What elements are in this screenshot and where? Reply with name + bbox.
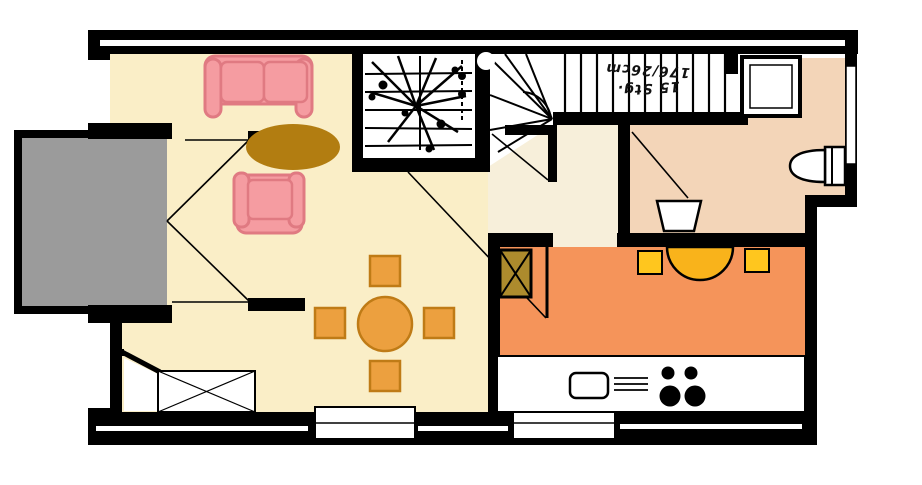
wall-stair-door-stub: [548, 133, 557, 182]
armchair-cushion: [248, 180, 292, 219]
wall-entrance-inner: [110, 323, 122, 412]
stove-burner-large-left: [660, 386, 681, 407]
wall-face-top: [100, 40, 845, 46]
wall-sketch-stairs-left: [352, 52, 363, 172]
entrance-cabinet: [158, 371, 255, 412]
wall-bathroom-kitchen: [617, 233, 817, 247]
wall-terrace-top: [88, 123, 172, 139]
dining-table: [358, 297, 412, 351]
bathroom-sink: [657, 201, 701, 234]
wall-face-bottom-left: [96, 426, 308, 431]
armchair: [234, 173, 304, 233]
sofa-cushion-left: [221, 62, 264, 102]
wall-bathroom-left: [618, 120, 630, 247]
toilet-tank: [825, 147, 845, 185]
wall-sketch-stairs-bottom: [352, 158, 490, 172]
dining-chair-bottom: [370, 361, 400, 391]
kitchen-sink: [570, 373, 608, 398]
wall-face-bottom-right: [620, 424, 802, 429]
window-left-upper: [88, 60, 110, 123]
wall-face-bottom-mid: [418, 426, 508, 431]
window-bottom-left: [315, 407, 415, 439]
kitchen-chair-left: [638, 251, 662, 274]
stove-burner-small-right: [685, 367, 698, 380]
sofa-arm-left: [205, 59, 221, 117]
kitchen-chair-right: [745, 249, 769, 272]
terrace-border-bottom: [14, 306, 90, 314]
wall-kitchen-right: [805, 195, 817, 445]
stair-door-pivot: [477, 52, 495, 70]
kitchen-counter: [497, 356, 805, 412]
coffee-table: [246, 124, 340, 170]
refrigerator-cabinet: [500, 250, 531, 297]
window-left-lower: [88, 323, 110, 408]
sofa-cushion-right: [264, 62, 307, 102]
stove-burner-large-right: [685, 386, 706, 407]
wall-bathroom-step: [817, 195, 857, 207]
terrace-border-left: [14, 130, 22, 314]
shower: [742, 57, 800, 116]
terrace-border-top: [14, 130, 90, 138]
kitchen-doorway-floor: [553, 233, 617, 247]
wall-terrace-door-stub-bottom: [248, 298, 305, 311]
wall-stair-bath-divider: [726, 48, 738, 74]
terrace-floor: [22, 138, 167, 306]
wall-stair-run-bottom: [553, 112, 748, 125]
stove-burner-small-left: [662, 367, 675, 380]
floor-plan: 15 Stg. 176/26cm: [0, 0, 922, 485]
dining-chair-right: [424, 308, 454, 338]
terrace: [14, 130, 167, 314]
dining-chair-top: [370, 256, 400, 286]
dining-chair-left: [315, 308, 345, 338]
window-bathroom-right: [846, 66, 856, 164]
